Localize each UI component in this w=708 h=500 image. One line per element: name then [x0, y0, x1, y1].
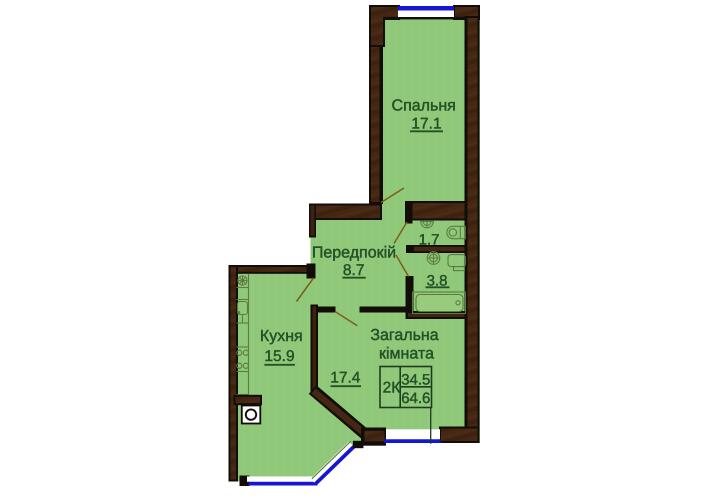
svg-text:17.1: 17.1: [411, 116, 441, 133]
svg-text:1.7: 1.7: [419, 231, 440, 248]
svg-text:2К: 2К: [383, 380, 401, 397]
svg-text:34.5: 34.5: [401, 371, 430, 388]
svg-text:17.4: 17.4: [330, 369, 361, 386]
svg-text:Кухня: Кухня: [260, 328, 303, 345]
svg-text:8.7: 8.7: [343, 262, 365, 279]
svg-text:15.9: 15.9: [264, 348, 294, 365]
svg-text:Спальня: Спальня: [392, 98, 456, 115]
svg-text:Передпокій: Передпокій: [312, 245, 396, 262]
svg-text:64.6: 64.6: [401, 390, 430, 407]
svg-text:кімната: кімната: [379, 346, 434, 363]
svg-text:Загальна: Загальна: [370, 327, 438, 344]
